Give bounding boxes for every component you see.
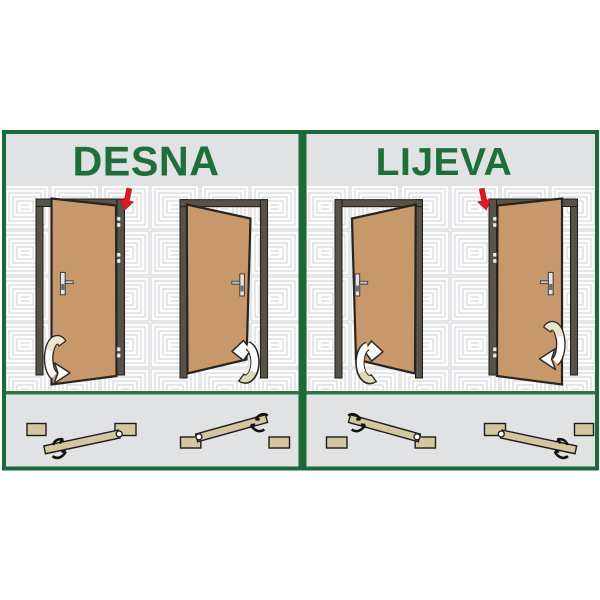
svg-text:LIJEVA: LIJEVA (376, 141, 513, 184)
svg-text:DESNA: DESNA (72, 139, 219, 185)
